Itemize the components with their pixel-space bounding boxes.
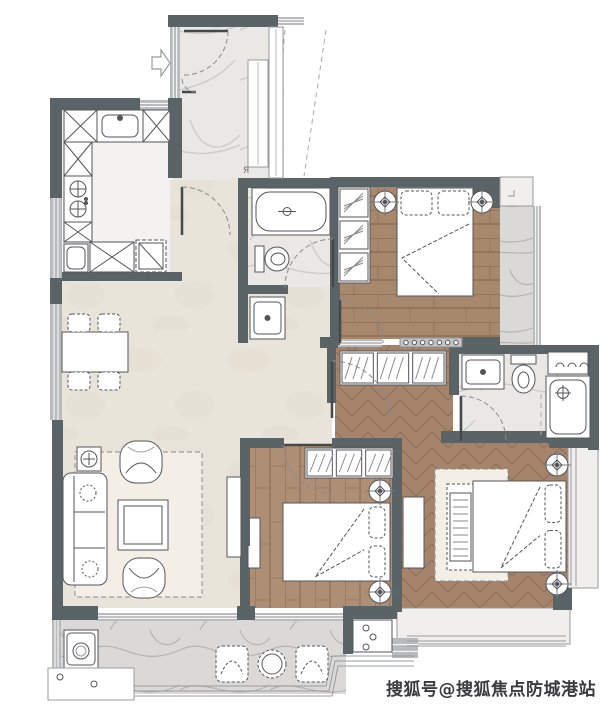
corridor-wardrobe xyxy=(340,351,446,385)
master-bed xyxy=(473,481,566,572)
entry-arrow xyxy=(152,50,170,76)
dining-chair xyxy=(68,372,90,390)
washbasin xyxy=(250,297,285,339)
bathtub xyxy=(252,188,330,235)
bedroom1-balcony-floor xyxy=(500,206,534,345)
sliding-door xyxy=(400,338,462,347)
sofa xyxy=(63,473,107,585)
wall xyxy=(52,606,98,620)
balcony-table xyxy=(258,650,286,678)
dining-chair xyxy=(68,314,90,332)
tv-console xyxy=(227,477,241,557)
wall xyxy=(237,606,255,620)
wall xyxy=(441,431,551,443)
bedroom2-wardrobe xyxy=(305,448,393,478)
wall xyxy=(332,438,397,448)
shower xyxy=(546,376,590,438)
wall xyxy=(50,98,140,110)
dining-chair xyxy=(98,314,120,332)
stove xyxy=(64,176,92,222)
wall xyxy=(320,337,338,348)
kitchen-counter xyxy=(90,242,134,272)
wall xyxy=(168,15,278,27)
balcony-chair xyxy=(216,646,248,682)
towel-shelf xyxy=(548,352,588,374)
wall xyxy=(238,178,334,188)
wall xyxy=(52,420,63,620)
master-toilet xyxy=(511,355,536,393)
washing-machine xyxy=(64,630,98,668)
crib xyxy=(447,484,474,570)
kitchen-counter xyxy=(143,110,170,142)
master-washbasin xyxy=(462,355,504,389)
wall xyxy=(240,438,284,448)
kitchen-counter xyxy=(64,110,97,142)
floor-plan: Я搜狐号@搜狐焦点防城港站 xyxy=(0,0,603,707)
wall xyxy=(238,186,248,288)
dining-chair xyxy=(98,372,120,390)
armchair xyxy=(123,558,165,598)
toilet xyxy=(255,246,289,272)
bay-window-bottom xyxy=(397,608,570,644)
kitchen-counter xyxy=(64,142,92,176)
fridge xyxy=(136,240,166,272)
light-wall xyxy=(170,27,180,98)
wall xyxy=(62,272,182,281)
kitchen-sink xyxy=(97,110,143,142)
entry-cabinet xyxy=(269,27,283,178)
wall xyxy=(50,278,62,304)
window-sill xyxy=(500,177,533,206)
kitchen-counter xyxy=(64,222,92,242)
wall xyxy=(343,606,353,654)
dining-table xyxy=(62,332,128,372)
tv xyxy=(245,498,250,546)
light-wall xyxy=(97,613,237,621)
light-wall xyxy=(338,339,382,347)
bedroom2-bed xyxy=(283,503,390,581)
shoe-cabinet xyxy=(248,60,268,167)
master-tv-console xyxy=(403,497,424,568)
ac-unit xyxy=(353,620,392,652)
armchair xyxy=(120,441,162,483)
light-wall xyxy=(50,198,62,278)
floor-plan-svg: Я搜狐号@搜狐焦点防城港站 xyxy=(0,0,603,707)
light-wall xyxy=(50,304,62,420)
side-table xyxy=(77,447,101,471)
wall xyxy=(238,285,248,343)
bedroom1-wardrobe xyxy=(338,187,370,283)
light-wall xyxy=(533,206,541,345)
coffee-table xyxy=(118,500,168,550)
ac-platform xyxy=(48,668,134,700)
dishwasher xyxy=(64,244,88,272)
light-wall xyxy=(278,17,304,25)
watermark: 搜狐号@搜狐焦点防城港站 xyxy=(386,679,596,700)
wall xyxy=(549,438,599,448)
label-ya: Я xyxy=(243,166,249,176)
wall xyxy=(340,177,473,187)
bedroom1-bed xyxy=(397,188,473,296)
bay-window-right xyxy=(568,446,598,588)
light-wall xyxy=(253,613,343,621)
balcony-chair xyxy=(296,646,328,682)
wall xyxy=(50,110,62,198)
